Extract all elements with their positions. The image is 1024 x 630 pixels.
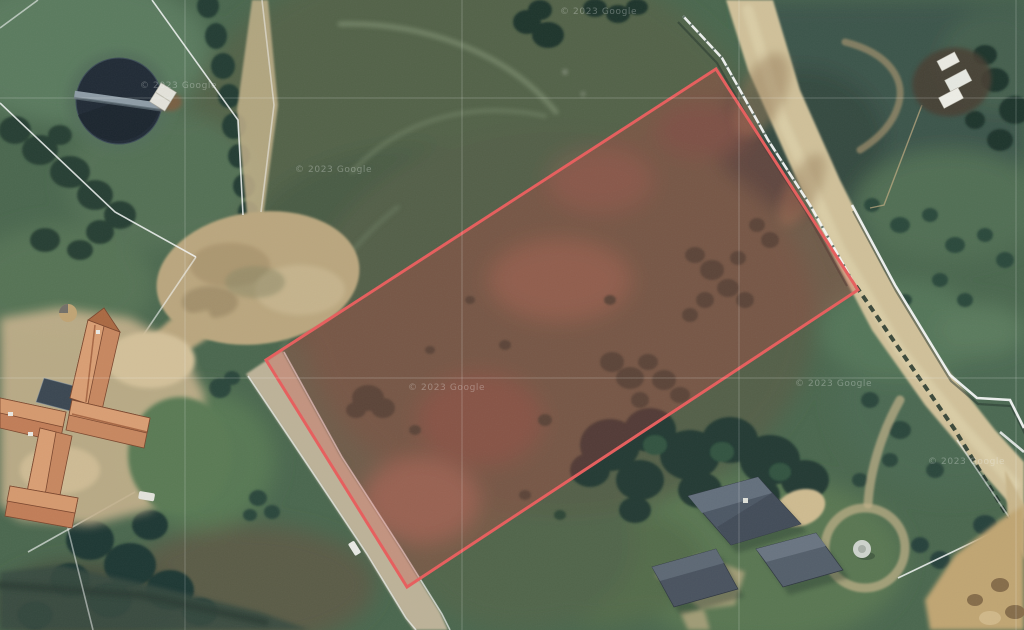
color-cast xyxy=(0,0,1024,630)
map-canvas[interactable]: © 2023 Google© 2023 Google© 2023 Google©… xyxy=(0,0,1024,630)
satellite-map-view[interactable]: © 2023 Google© 2023 Google© 2023 Google©… xyxy=(0,0,1024,630)
